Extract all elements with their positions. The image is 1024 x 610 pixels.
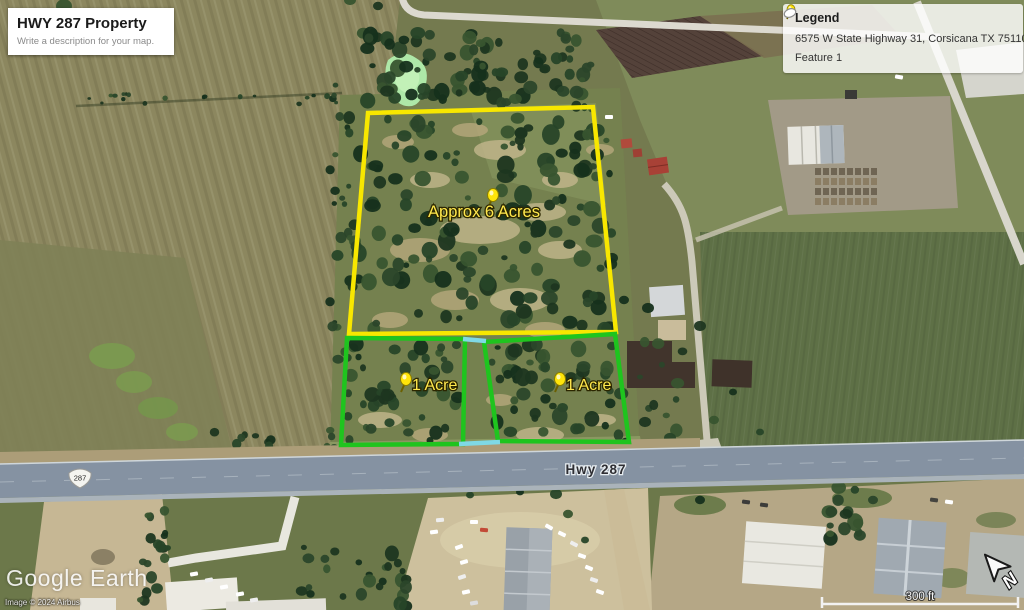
one-acre-east-label: 1 Acre	[566, 377, 611, 394]
shield-number: 287	[74, 474, 87, 483]
legend-item-address[interactable]: 6575 W State Highway 31, Corsicana TX 75…	[795, 29, 1017, 48]
imagery-copyright: Image © 2024 Airbus	[5, 598, 80, 607]
satellite-map[interactable]: Approx 6 Acres 1 Acre 1 Acre 287 Hwy 287…	[0, 0, 1024, 610]
legend-item-label: 6575 W State Highway 31, Corsicana TX 75…	[795, 33, 1024, 45]
dark-roof-building	[712, 359, 753, 387]
six-acre-label: Approx 6 Acres	[428, 203, 540, 221]
legend-heading: Legend	[795, 11, 1017, 25]
legend-item-feature1[interactable]: Feature 1	[795, 48, 1017, 67]
one-acre-west-label: 1 Acre	[412, 377, 457, 394]
map-title[interactable]: HWY 287 Property	[17, 15, 165, 33]
map-description-placeholder[interactable]: Write a description for your map.	[17, 36, 165, 47]
google-earth-logo: Google Earth	[6, 565, 148, 592]
map-title-card[interactable]: HWY 287 Property Write a description for…	[8, 8, 174, 55]
polygon-outline-icon	[783, 4, 797, 20]
feature1-line-top[interactable]	[463, 339, 486, 341]
feature1-line-bottom[interactable]	[459, 442, 500, 444]
legend-panel: Legend 6575 W State Highway 31, Corsican…	[783, 4, 1023, 73]
google-earth-map-view: Approx 6 Acres 1 Acre 1 Acre 287 Hwy 287…	[0, 0, 1024, 610]
legend-item-label: Feature 1	[795, 52, 842, 64]
scale-label: 300 ft	[906, 591, 936, 603]
white-warehouse	[742, 521, 826, 588]
highway-name-label: Hwy 287	[565, 462, 626, 477]
barn	[649, 285, 685, 317]
